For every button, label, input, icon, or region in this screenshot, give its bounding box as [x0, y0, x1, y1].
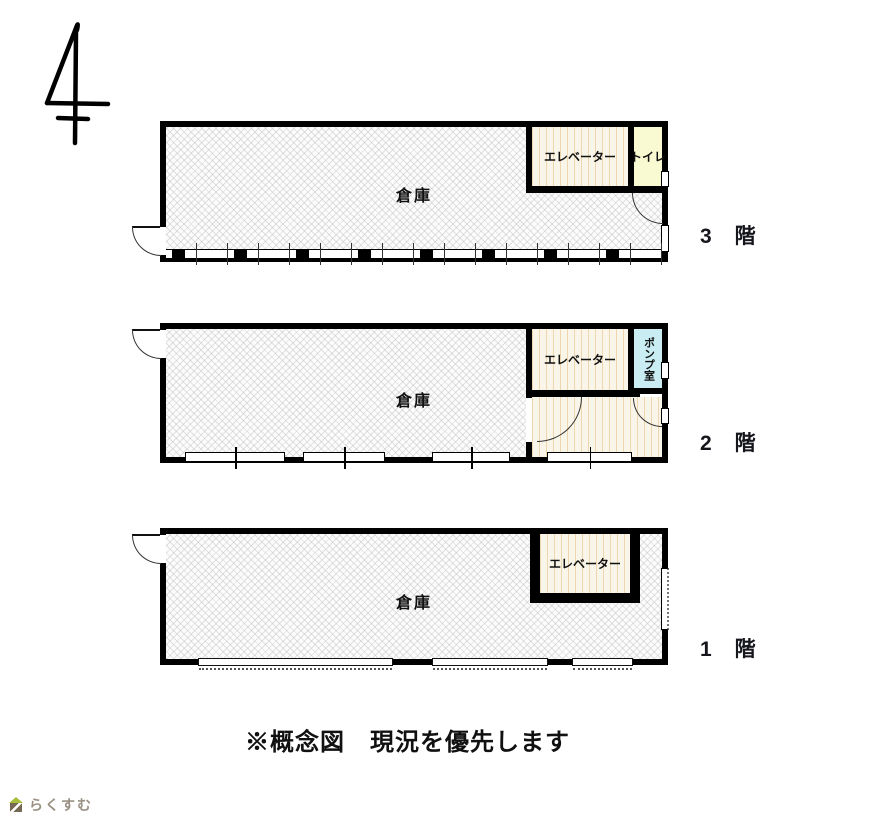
- room-label-elevator-2f: エレベーター: [544, 351, 616, 368]
- toilet-room-3f: トイレ: [634, 127, 662, 186]
- floor-3-plan: 倉庫 エレベーター トイレ: [160, 121, 668, 262]
- wall: [526, 390, 640, 397]
- window: [185, 452, 285, 462]
- room-label-pump-2f: ポンプ室: [643, 337, 654, 381]
- window: [661, 408, 669, 424]
- room-label-elevator-3f: エレベーター: [544, 148, 616, 165]
- wall: [634, 388, 662, 394]
- floor-label-3f: 3 階: [700, 220, 757, 250]
- logo-text: らくすむ: [29, 795, 93, 815]
- room-label-toilet-3f: トイレ: [630, 148, 666, 165]
- elevator-room-2f: エレベーター: [532, 329, 628, 390]
- window: [547, 452, 632, 462]
- door-arc: [132, 330, 161, 359]
- floor-label-1f: 1 階: [700, 633, 757, 663]
- window: [661, 225, 669, 252]
- floorplan-canvas: 倉庫 エレベーター トイレ 3 階 倉庫 エレ: [0, 0, 888, 819]
- pump-room-2f: ポンプ室: [634, 329, 662, 388]
- door-opening: [526, 398, 532, 442]
- elevator-room-3f: エレベーター: [532, 127, 628, 186]
- shutter-opening: [432, 658, 548, 666]
- window: [661, 362, 669, 379]
- wall: [526, 186, 662, 193]
- wall: [530, 593, 640, 603]
- disclaimer-note: ※概念図 現況を優先します: [245, 722, 570, 757]
- room-label-elevator-1f: エレベーター: [549, 555, 621, 572]
- floor-label-2f: 2 階: [700, 427, 757, 457]
- door-arc: [132, 227, 161, 256]
- rakusumu-logo: らくすむ: [8, 795, 93, 815]
- shutter-opening: [572, 658, 633, 666]
- floor-2-plan: 倉庫 エレベーター ポンプ室: [160, 323, 668, 463]
- window-mullions: [166, 243, 662, 265]
- window: [661, 568, 669, 630]
- house-icon: [8, 797, 24, 813]
- elevator-room-1f: エレベーター: [540, 534, 630, 593]
- window: [303, 452, 385, 462]
- window: [432, 452, 510, 462]
- window: [661, 171, 669, 187]
- north-arrow-icon: [36, 6, 120, 152]
- floor-1-plan: 倉庫 エレベーター: [160, 528, 668, 665]
- shutter-opening: [198, 658, 393, 666]
- door-arc: [132, 535, 161, 564]
